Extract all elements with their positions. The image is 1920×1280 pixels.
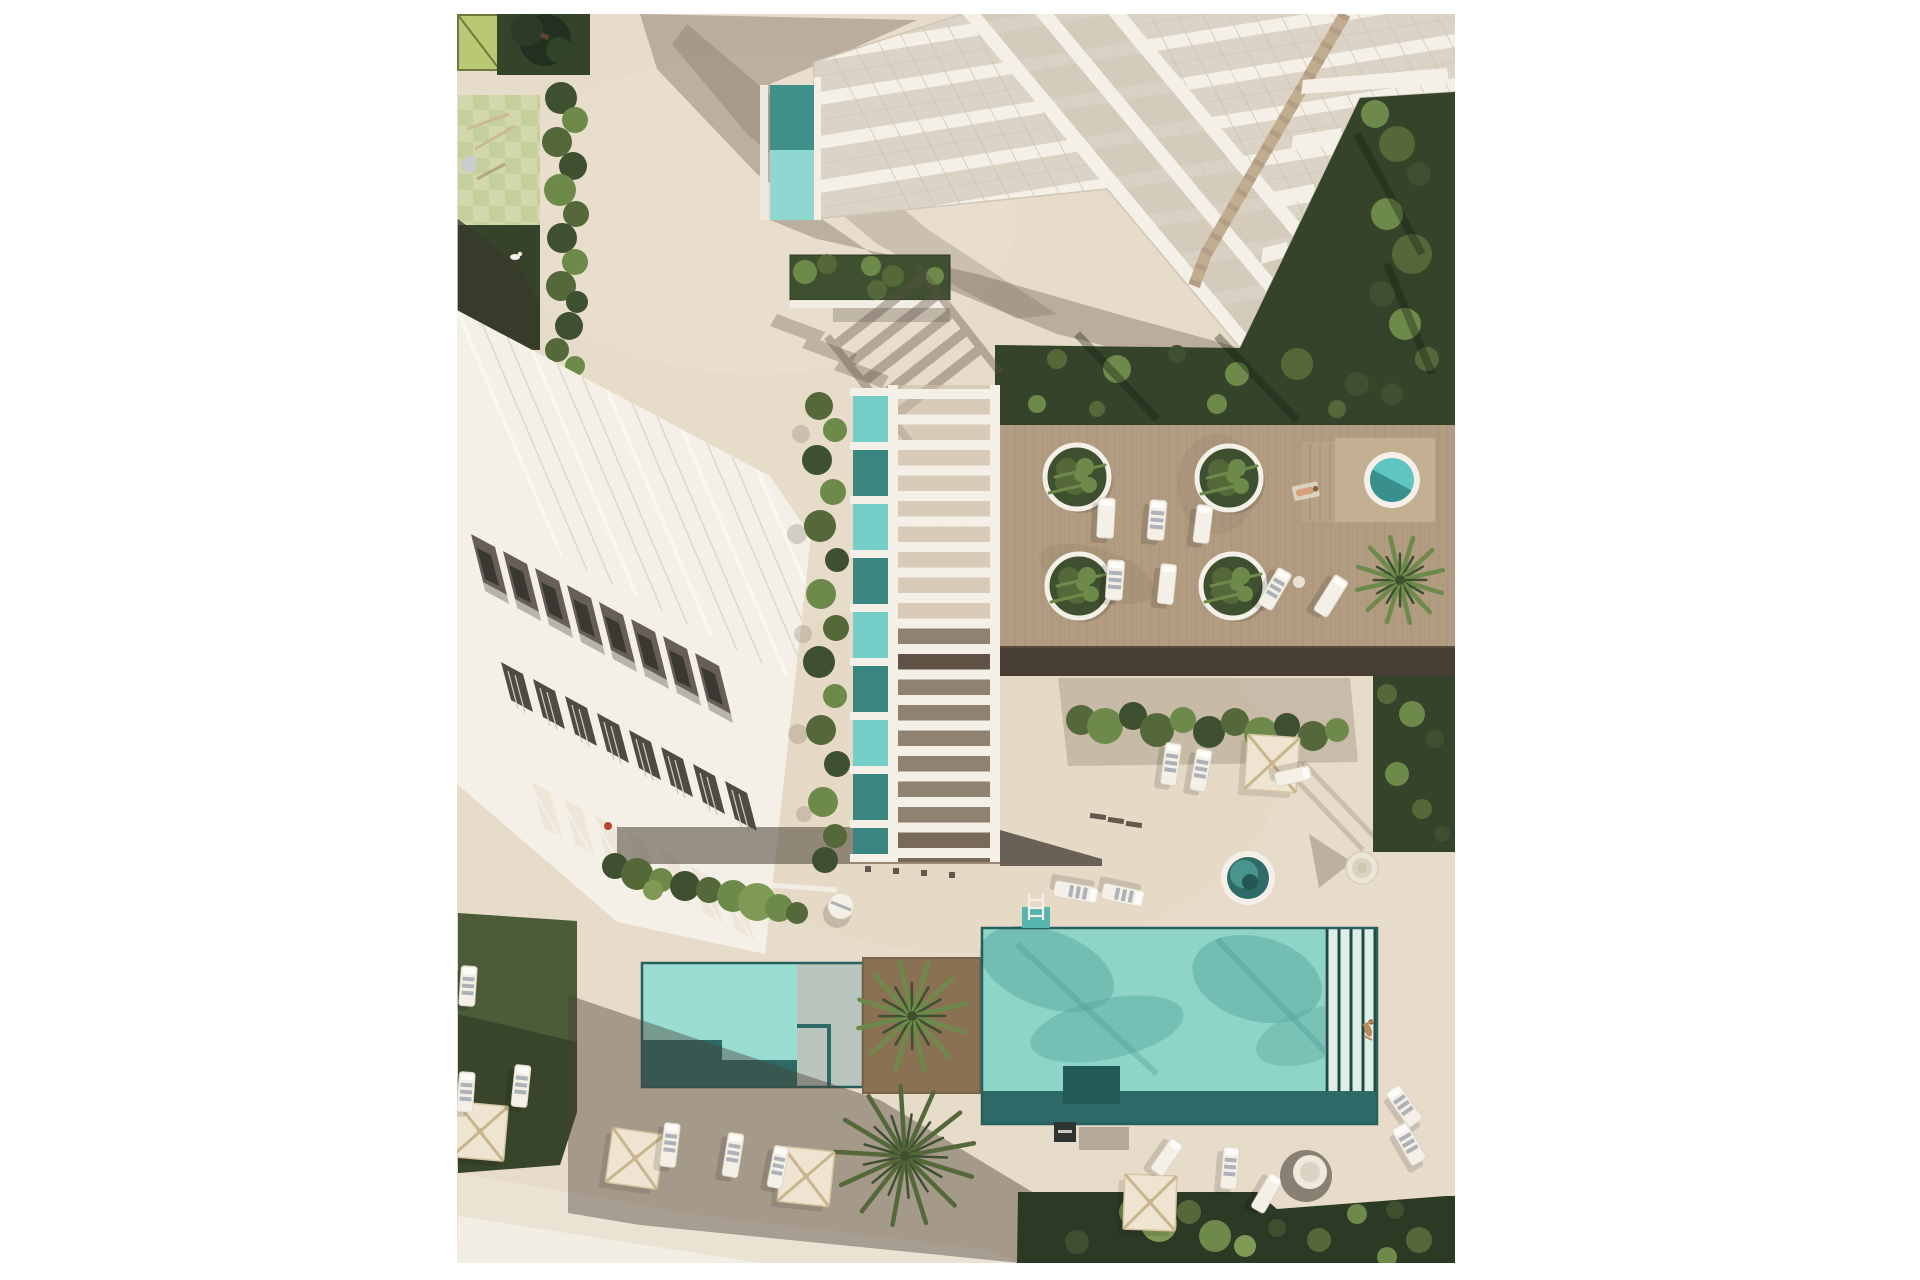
garden-plant [1399,701,1425,727]
planter-plant [836,263,862,289]
bush [670,871,700,901]
garden-plant [1168,345,1186,363]
garden-plant [1268,1219,1286,1237]
garden-plant [1281,348,1313,380]
hedge-bush [563,201,589,227]
planting-bush [802,445,832,475]
sun-lounger [1140,499,1167,546]
garden-plant [1234,1235,1256,1257]
shadow-blob [787,524,807,544]
garden-plant [1426,730,1444,748]
planting-bush [808,787,838,817]
garden-plant [1047,349,1067,369]
round-chair-bottom [1280,1150,1332,1202]
pergola-rung [890,670,998,680]
page: Top-down aerial 3D architectural renderi… [0,0,1920,1280]
sun-lounger [1099,559,1125,605]
pergola-rung [890,721,998,731]
planting-bush [805,392,833,420]
sun-lounger [457,1071,475,1117]
hedge-bush [1087,708,1123,744]
planting-bush [823,684,847,708]
spa-platform [1302,438,1435,522]
hedge-bush [1274,713,1300,739]
garden-plant [1361,100,1389,128]
bush [643,880,663,900]
planting-bush [825,548,849,572]
garden-plant [1345,372,1369,396]
garden-plant [1379,126,1415,162]
planting-bush [820,479,846,505]
garden-plant [1347,1204,1367,1224]
hedge-bush [1140,713,1174,747]
planter-plant [808,281,826,299]
pergola-rung [890,593,998,603]
planting-bush [806,715,836,745]
pergola-rung [890,415,998,425]
planter-plant [861,256,881,276]
garden-plant [1377,684,1397,704]
garden-plant [1412,799,1432,819]
pergola-rung [890,644,998,654]
hedge-bush [544,174,576,206]
planter-plant [867,280,887,300]
planting-bush [823,418,847,442]
garden-plant [1307,1228,1331,1252]
pergola-rung [890,746,998,756]
planting-bush [823,615,849,641]
shadow-blob [792,425,810,443]
hedge-bush [566,291,588,313]
person-in-red [604,822,612,830]
garden-plant [1434,826,1450,842]
pergola-rung [890,568,998,578]
garden-plant [1381,383,1403,405]
hot-tub [1221,851,1275,905]
pergola-rung [890,466,998,476]
planting-bush [803,646,835,678]
garden-plant [1385,762,1409,786]
hedge-bush [562,249,588,275]
mini-umbrella-icon [461,156,477,172]
hedge-bush [1193,716,1225,748]
hedge-bush [545,338,569,362]
pergola-rung [890,848,998,858]
pergola-rung [890,542,998,552]
garden-plant [1065,1230,1089,1254]
render-canvas [457,14,1455,1263]
planter-plant [882,265,904,287]
garden-plant [1328,400,1346,418]
planter-plant [817,254,837,274]
hedge-bush [1298,721,1328,751]
planting-bush [812,847,838,873]
sun-umbrella [1117,1174,1177,1237]
hedge-bush [542,127,572,157]
main-pool [968,894,1377,1150]
pergola-rung [890,389,998,399]
garden-bottom-right [1017,1192,1455,1263]
bush [786,902,808,924]
garden-plant [1386,1201,1404,1219]
hedge-bush [547,223,577,253]
hedge-bush [1325,718,1349,742]
hedge-bush [1170,707,1196,733]
hedge-bush [562,107,588,133]
planter-plant [793,260,817,284]
deck-planter [1201,554,1269,622]
garden-plant [1089,401,1105,417]
shadow-blob [794,625,812,643]
hedge-bush [555,312,583,340]
lap-pool [850,388,891,862]
garden-plant [1199,1220,1231,1252]
planting-bush [804,510,836,542]
pergola-rung [890,772,998,782]
pergola-rung [890,695,998,705]
side-table [1293,576,1305,588]
pergola-rung [890,517,998,527]
aerial-render: Top-down aerial 3D architectural renderi… [457,14,1455,1263]
pergola-rung [890,823,998,833]
pergola-rung [890,491,998,501]
pergola-rung [890,619,998,629]
planting-bush [824,751,850,777]
planting-bush [823,824,847,848]
grass-square-tree [497,14,590,75]
garden-plant [1207,394,1227,414]
sun-lounger [1090,497,1115,543]
planting-bush [806,579,836,609]
garden-plant [1369,281,1395,307]
garden-plant [1028,395,1046,413]
pergola-rung [890,797,998,807]
deck-planter [1197,446,1265,514]
sun-lounger [457,965,477,1011]
garden-plant [1407,162,1431,186]
sun-lounger [1214,1146,1240,1195]
garden-plant [1406,1227,1432,1253]
shadow-blob [788,724,808,744]
pergola-rung [890,440,998,450]
garden-plant [1177,1200,1201,1224]
